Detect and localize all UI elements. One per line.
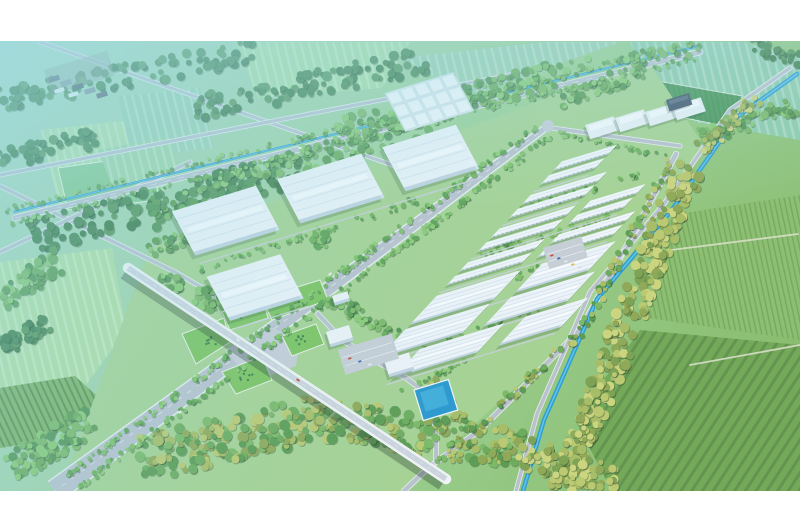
scene-svg	[0, 41, 800, 491]
bottom-white-margin	[0, 491, 800, 530]
aerial-render-image	[0, 41, 800, 491]
top-white-margin	[0, 0, 800, 41]
atmospheric-haze	[0, 41, 800, 491]
screenshot-root	[0, 0, 800, 530]
